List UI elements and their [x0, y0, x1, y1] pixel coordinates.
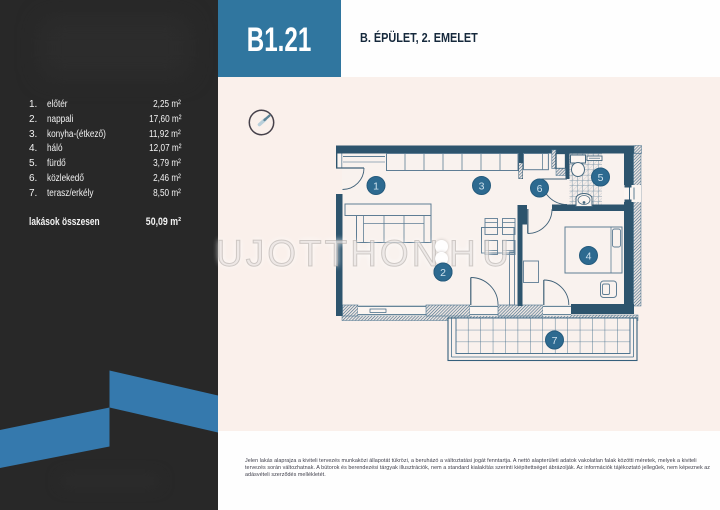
svg-text:2: 2 — [440, 267, 446, 279]
svg-text:4: 4 — [586, 250, 592, 262]
svg-text:1: 1 — [373, 180, 379, 192]
svg-text:7: 7 — [552, 335, 558, 347]
svg-text:3: 3 — [479, 180, 485, 192]
svg-text:6: 6 — [537, 183, 543, 195]
svg-text:5: 5 — [598, 172, 604, 184]
